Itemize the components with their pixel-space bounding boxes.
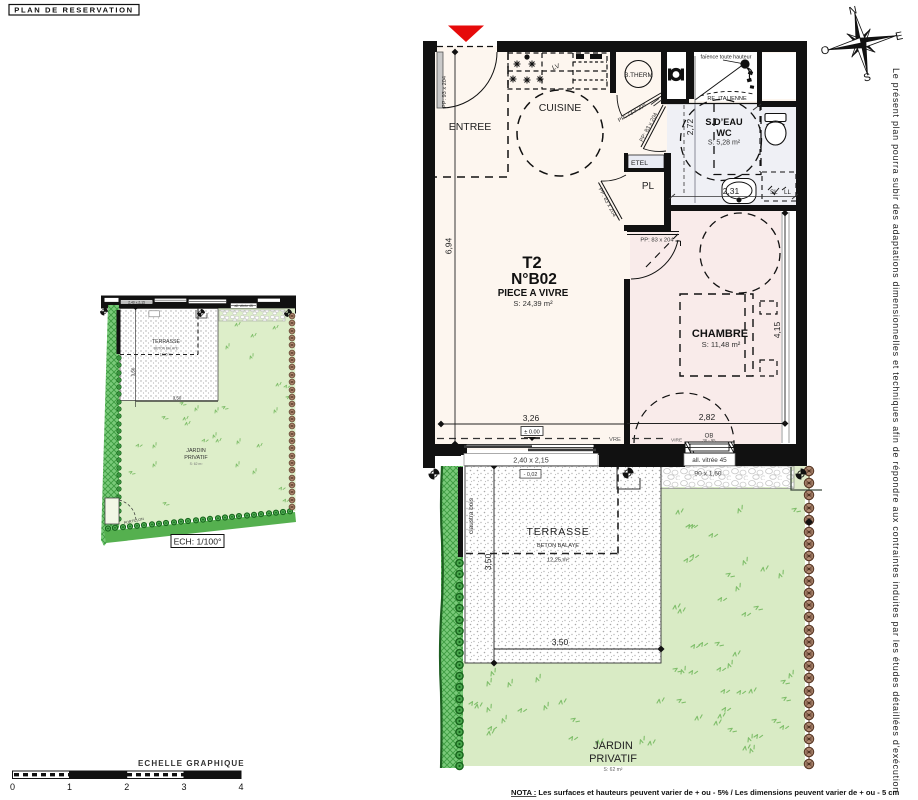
svg-text:all. vitrée 45: all. vitrée 45	[692, 457, 727, 464]
svg-text:90 x 1,60: 90 x 1,60	[694, 471, 721, 478]
svg-text:JARDIN: JARDIN	[186, 448, 206, 454]
svg-text:- 0,02: - 0,02	[524, 472, 538, 478]
svg-text:2,40 x 2,15: 2,40 x 2,15	[128, 300, 145, 304]
svg-text:12,25 m²: 12,25 m²	[160, 353, 173, 357]
svg-text:1: 1	[67, 782, 72, 792]
svg-text:4: 4	[238, 782, 243, 792]
svg-text:S: 62 m²: S: 62 m²	[604, 767, 623, 773]
svg-text:TERRASSE: TERRASSE	[152, 339, 181, 345]
svg-text:all. vitrée 45: all. vitrée 45	[235, 304, 253, 308]
svg-text:S.D’EAU: S.D’EAU	[705, 117, 743, 127]
svg-text:S: 11,48 m²: S: 11,48 m²	[702, 340, 741, 349]
svg-text:BETON BALAYE: BETON BALAYE	[537, 543, 579, 549]
svg-text:± 0.00: ± 0.00	[524, 430, 540, 436]
svg-text:3,50: 3,50	[483, 553, 493, 570]
svg-text:S: 24,39 m²: S: 24,39 m²	[513, 299, 553, 308]
svg-text:CHAMBRE: CHAMBRE	[692, 328, 748, 340]
svg-text:ECH: 1/100°: ECH: 1/100°	[174, 537, 222, 547]
svg-text:B.THERM: B.THERM	[624, 72, 653, 79]
svg-text:4,15: 4,15	[772, 321, 782, 338]
svg-text:VIRE: VIRE	[671, 438, 682, 444]
svg-text:VRE: VRE	[609, 437, 621, 443]
svg-text:PP: 93 x 204: PP: 93 x 204	[442, 76, 448, 108]
svg-text:3,50: 3,50	[131, 367, 136, 376]
svg-text:ETEL: ETEL	[631, 160, 648, 167]
svg-text:PIECE A VIVRE: PIECE A VIVRE	[498, 288, 569, 299]
svg-text:12,25 m²: 12,25 m²	[547, 558, 569, 564]
svg-text:36 - 95: 36 - 95	[702, 438, 716, 443]
svg-text:2: 2	[124, 782, 129, 792]
svg-text:T2: T2	[522, 254, 541, 272]
svg-text:NOTA : Les surfaces et hauteur: NOTA : Les surfaces et hauteurs peuvent …	[511, 788, 899, 797]
svg-text:TERRASSE: TERRASSE	[527, 526, 590, 538]
svg-text:3,50: 3,50	[173, 396, 182, 401]
svg-text:PP: 83 x 204: PP: 83 x 204	[640, 238, 674, 244]
svg-text:LL: LL	[784, 189, 791, 196]
svg-text:S: 62 m²: S: 62 m²	[190, 462, 204, 466]
svg-text:3,50: 3,50	[552, 637, 569, 647]
svg-text:PRIVATIF: PRIVATIF	[589, 753, 637, 765]
svg-text:2,31: 2,31	[723, 186, 740, 196]
svg-text:N°B02: N°B02	[511, 271, 557, 288]
svg-text:RE. ITALIENNE: RE. ITALIENNE	[707, 96, 747, 102]
svg-text:ECHELLE GRAPHIQUE: ECHELLE GRAPHIQUE	[138, 759, 245, 768]
svg-text:SL: SL	[770, 189, 778, 196]
svg-text:PL: PL	[642, 181, 655, 192]
svg-text:3,26: 3,26	[523, 413, 540, 423]
svg-text:PRIVATIF: PRIVATIF	[184, 455, 208, 461]
svg-text:3: 3	[181, 782, 186, 792]
svg-text:2,40 x 2,15: 2,40 x 2,15	[513, 456, 549, 465]
svg-text:2,72: 2,72	[685, 118, 695, 135]
svg-text:WC: WC	[716, 128, 732, 138]
svg-text:CUISINE: CUISINE	[539, 102, 582, 114]
svg-text:0: 0	[10, 782, 15, 792]
svg-text:PLAN DE RESERVATION: PLAN DE RESERVATION	[14, 6, 133, 15]
svg-text:claustra bois: claustra bois	[468, 498, 475, 534]
svg-text:Le présent plan pourra subir d: Le présent plan pourra subir des adaptat…	[891, 68, 901, 796]
svg-text:JARDIN: JARDIN	[593, 740, 633, 752]
svg-text:S: 5,28 m²: S: 5,28 m²	[708, 140, 741, 147]
svg-text:2,82: 2,82	[699, 412, 716, 422]
svg-text:BETON BALAYE: BETON BALAYE	[154, 347, 178, 351]
svg-text:6,94: 6,94	[444, 237, 454, 254]
